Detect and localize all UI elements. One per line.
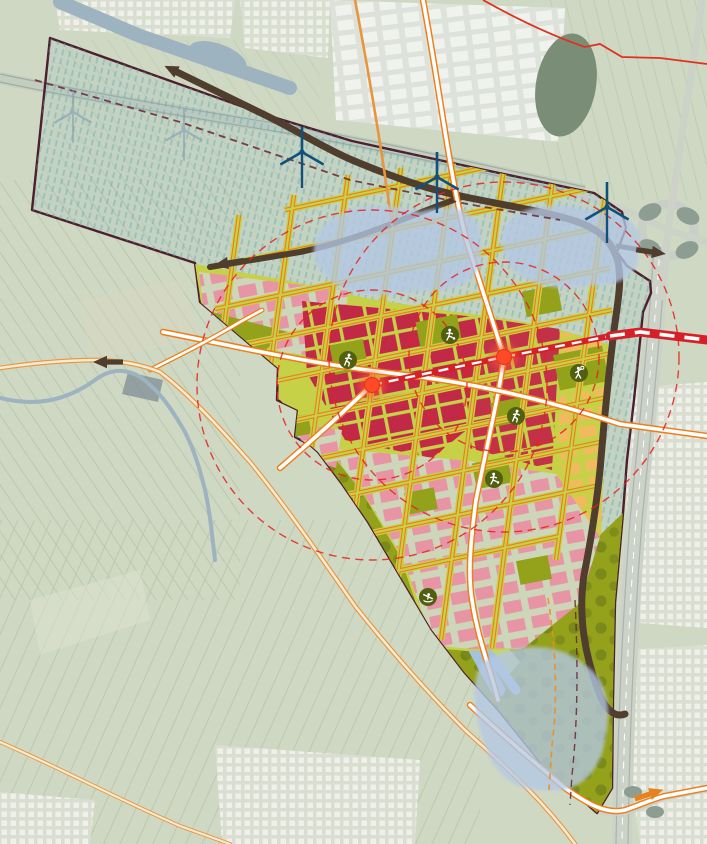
station-west	[365, 378, 380, 393]
industrial-estate-north	[330, 0, 565, 142]
soccer-icon	[441, 326, 459, 344]
town-south-edge	[0, 792, 95, 844]
tennis-icon	[570, 364, 588, 382]
lake-north-west	[314, 206, 482, 295]
map-canvas	[0, 0, 707, 844]
soccer-icon	[485, 470, 503, 488]
rowing-icon	[419, 588, 437, 606]
running-icon	[339, 351, 357, 369]
masterplan-map	[0, 0, 707, 844]
town-southwest	[215, 745, 420, 844]
station-east	[497, 350, 512, 365]
lake-north-east	[502, 206, 640, 288]
running-icon	[507, 407, 525, 425]
